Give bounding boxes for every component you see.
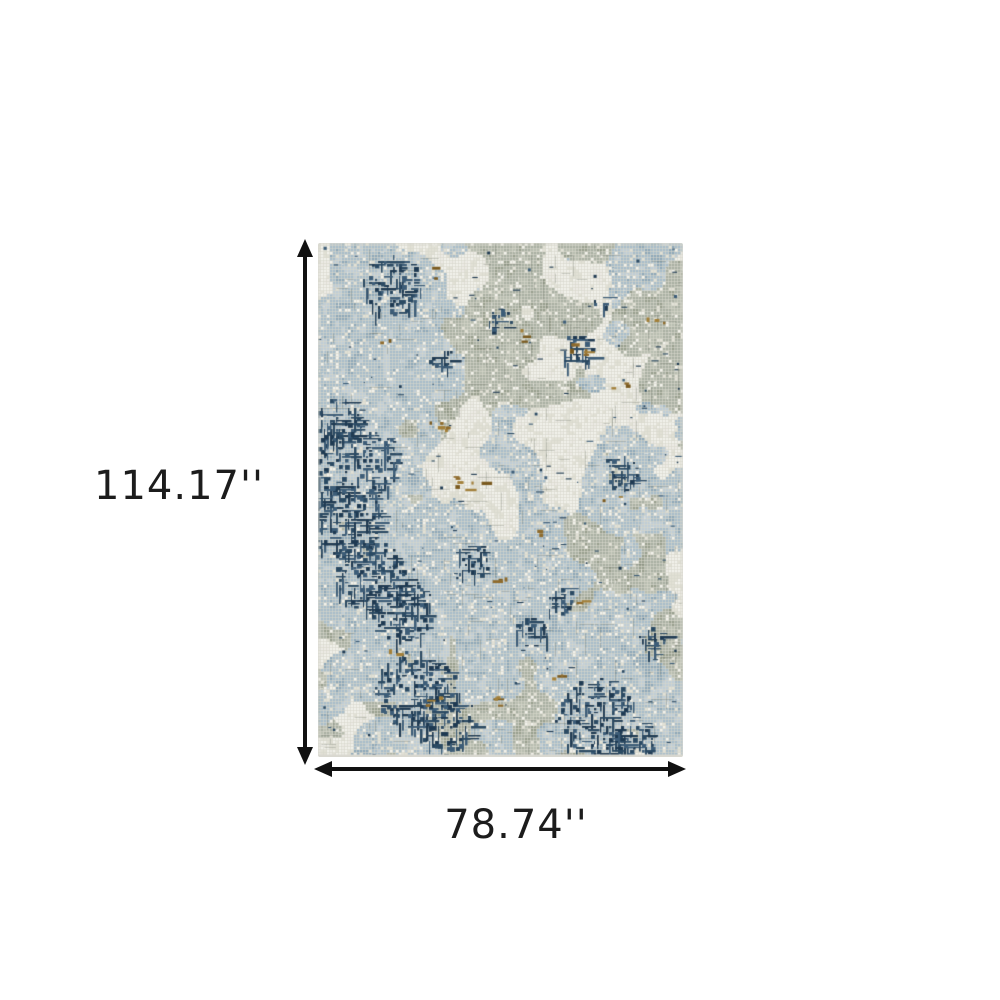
height-dimension-arrow — [297, 239, 313, 765]
height-arrow-head-top-icon — [297, 239, 313, 257]
height-dimension-label: 114.17'' — [74, 462, 284, 510]
width-arrow-head-right-icon — [668, 761, 686, 777]
rug-image — [318, 243, 683, 757]
width-dimension-label: 78.74'' — [411, 801, 621, 849]
product-dimension-image: 114.17'' 78.74'' — [0, 0, 1000, 1000]
height-arrow-head-bottom-icon — [297, 747, 313, 765]
width-dimension-arrow — [314, 761, 686, 777]
width-arrow-head-left-icon — [314, 761, 332, 777]
